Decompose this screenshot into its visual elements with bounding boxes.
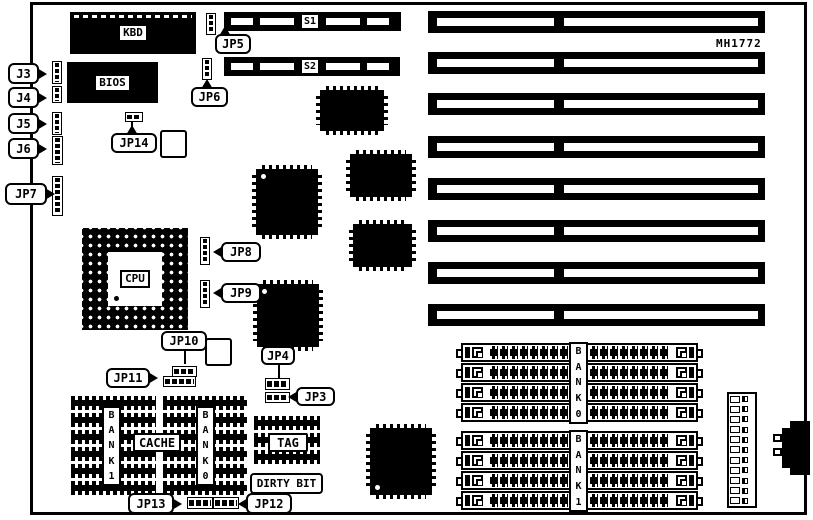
ic-chip — [256, 169, 318, 235]
pin-contact — [742, 488, 748, 494]
isa-slot — [428, 93, 765, 115]
callout-j6: J6 — [8, 138, 39, 159]
ic-chip — [350, 154, 412, 197]
j5-connector — [52, 112, 62, 135]
callout-j4: J4 — [8, 87, 39, 108]
pin-contact — [742, 467, 748, 473]
simm-bank1-label: BANK1 — [569, 430, 588, 512]
keyboard-port — [790, 465, 810, 475]
pin1-dot — [375, 485, 380, 490]
pointer-icon — [172, 498, 188, 510]
cpu-die-area: CPU — [108, 252, 162, 306]
callout-jp7: JP7 — [5, 183, 47, 205]
isa-slot — [428, 304, 765, 326]
callout-jp13: JP13 — [128, 493, 174, 514]
isa-slot — [428, 262, 765, 284]
j4-connector — [52, 86, 62, 103]
cache-bank0-label: BANK0 — [196, 406, 215, 486]
pointer-icon — [207, 246, 223, 258]
callout-jp5: JP5 — [215, 34, 251, 54]
pin-square — [730, 487, 740, 494]
callout-jp9: JP9 — [221, 283, 261, 303]
isa-slot — [428, 11, 765, 33]
kbd-pin-row — [74, 15, 192, 18]
callout-jp3: JP3 — [296, 387, 335, 406]
jp11-connector — [163, 376, 196, 387]
pointer-icon — [201, 73, 213, 89]
isa-slot — [428, 136, 765, 158]
tag-label: TAG — [268, 433, 308, 452]
pin1-dot — [262, 289, 267, 294]
simm-bank0-label: BANK0 — [569, 342, 588, 424]
motherboard-diagram: KBD BIOS S1 S2 MH1772 J3 J4 J5 J6 JP7 JP… — [0, 0, 813, 520]
pin-square — [730, 457, 740, 464]
cache-label: CACHE — [133, 433, 181, 452]
pin-contact — [742, 457, 748, 463]
dip-chip-row — [254, 416, 320, 430]
ic-chip — [370, 428, 432, 495]
pointer-icon — [37, 68, 53, 80]
callout-jp4: JP4 — [261, 346, 295, 365]
pin-square — [730, 446, 740, 453]
cpu-pin1-dot — [114, 296, 119, 301]
jp5-connector — [206, 13, 216, 35]
pin-square — [730, 467, 740, 474]
s2-label: S2 — [301, 59, 319, 74]
power-pin-column — [730, 396, 740, 504]
pin-square — [730, 436, 740, 443]
pin-contact — [742, 437, 748, 443]
isa-slot — [428, 52, 765, 74]
pin-contact — [742, 498, 748, 504]
pointer-icon — [232, 498, 248, 510]
dip-chip-row — [254, 450, 320, 464]
callout-jp11: JP11 — [106, 368, 150, 388]
callout-j5: J5 — [8, 113, 39, 134]
pin-square — [730, 416, 740, 423]
j3-connector — [52, 61, 62, 84]
pin1-dot — [261, 174, 266, 179]
pointer-icon — [37, 143, 53, 155]
isa-slot — [428, 220, 765, 242]
callout-jp8: JP8 — [221, 242, 261, 262]
part-number: MH1772 — [716, 37, 762, 50]
pointer-icon — [126, 119, 138, 135]
power-pin-column — [742, 396, 748, 504]
keyboard-port — [782, 428, 810, 468]
kbd-label: KBD — [118, 24, 148, 42]
cpu-socket: CPU — [82, 228, 188, 330]
pin-square — [730, 396, 740, 403]
ic-chip — [353, 224, 412, 267]
callout-jp10: JP10 — [161, 331, 207, 351]
cpu-label: CPU — [120, 270, 150, 288]
pin-contact — [742, 478, 748, 484]
pointer-icon — [45, 188, 61, 200]
serial-header-s2: S2 — [224, 57, 400, 76]
ic-chip — [257, 284, 319, 347]
s1-label: S1 — [301, 14, 319, 29]
pin-contact — [742, 427, 748, 433]
callout-jp14: JP14 — [111, 133, 157, 153]
pointer-icon — [207, 287, 223, 299]
pointer-icon — [148, 372, 164, 384]
ic-chip — [320, 90, 384, 131]
pointer-icon — [282, 391, 298, 403]
serial-header-s1: S1 — [224, 12, 401, 31]
bios-label: BIOS — [94, 74, 131, 92]
ic-socket — [205, 338, 232, 366]
pointer-icon — [37, 92, 53, 104]
jp4-connector — [265, 378, 290, 390]
port-notch — [773, 448, 782, 456]
pin-square — [730, 497, 740, 504]
isa-slot — [428, 178, 765, 200]
pin-square — [730, 426, 740, 433]
dirty-bit-label: DIRTY BIT — [250, 473, 323, 494]
pin-contact — [742, 406, 748, 412]
callout-jp12: JP12 — [246, 493, 292, 514]
pointer-icon — [37, 118, 53, 130]
pin-square — [730, 406, 740, 413]
pin-contact — [742, 396, 748, 402]
pointer-icon — [219, 20, 231, 36]
keyboard-controller-chip: KBD — [70, 12, 196, 54]
port-notch — [773, 434, 782, 442]
pin-contact — [742, 416, 748, 422]
crystal-socket — [160, 130, 187, 158]
callout-j3: J3 — [8, 63, 39, 84]
cache-bank1-label: BANK1 — [102, 406, 121, 486]
bios-chip: BIOS — [67, 62, 158, 103]
callout-jp6: JP6 — [191, 87, 228, 107]
power-connector — [727, 392, 757, 508]
jp13-connector — [187, 497, 213, 509]
pin-square — [730, 477, 740, 484]
keyboard-port — [790, 421, 810, 431]
pin-contact — [742, 447, 748, 453]
j6-connector — [52, 136, 63, 165]
